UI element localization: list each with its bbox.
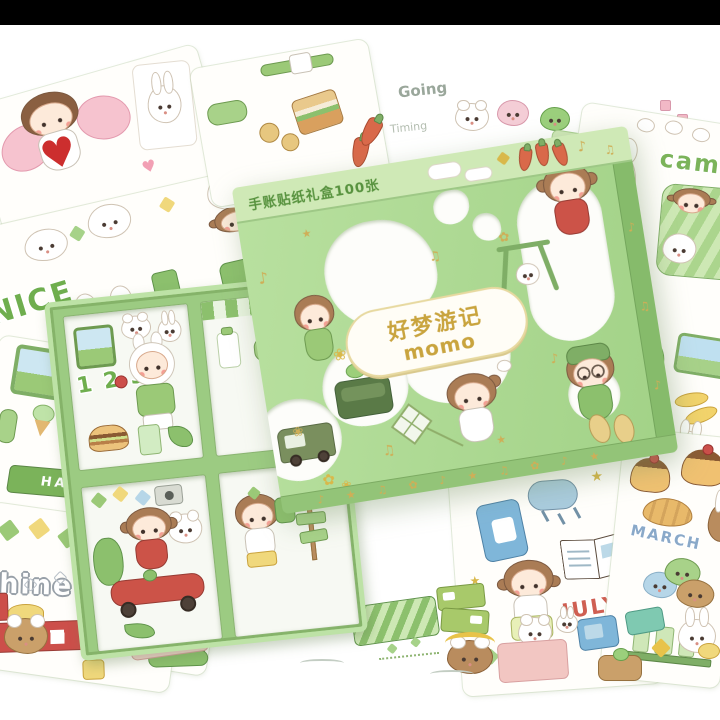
letterbox-top: [0, 0, 720, 25]
chick-icon: [496, 359, 513, 373]
green-outfit: [303, 326, 336, 362]
camera-lens: [164, 491, 174, 501]
mini-face-icon: [691, 127, 711, 144]
bear-head-sticker: [455, 103, 489, 131]
carrot-icon: [551, 141, 572, 168]
diamond-flower-icon: [28, 517, 50, 539]
camp-label: camp: [658, 144, 720, 182]
couch-cushion: [340, 382, 386, 403]
wheel-icon: [179, 595, 197, 613]
bunny-on-swing: [514, 261, 541, 286]
music-note-icon: ♪: [549, 351, 560, 367]
music-note-icon: ♫: [638, 298, 651, 314]
cloud-icon: [464, 165, 494, 182]
gold-star-icon: [496, 151, 510, 165]
cloud-bunny-icon: [21, 224, 71, 265]
diamond-sparkle-icon: [159, 196, 176, 213]
bunny-icon: [146, 84, 184, 125]
white-dress: [457, 406, 496, 445]
mini-face-icon: [636, 117, 656, 134]
game-console-sticker: [576, 614, 620, 651]
wheel-icon: [120, 601, 138, 619]
music-note-icon: ♫: [428, 249, 442, 266]
leaf-dot: [410, 637, 421, 648]
music-note-icon: ♫: [603, 142, 616, 158]
face: [662, 233, 696, 264]
yellow-shorts: [246, 550, 277, 568]
raindrop-icon: [573, 507, 581, 519]
bottle-cap: [221, 326, 234, 335]
diecut-window-flower: [431, 188, 472, 227]
tv-picture-sticker: [673, 332, 720, 380]
pig-head-sticker: [497, 100, 529, 126]
green-card-sticker: [440, 607, 490, 634]
duck-icon: [698, 643, 720, 659]
face: [5, 619, 47, 653]
leaf-icon: [124, 621, 156, 640]
box-lid: 手账贴纸礼盒100张 ♪ ♫: [232, 126, 679, 515]
card-chip: [470, 615, 483, 624]
couch-sticker-through-window: [333, 374, 394, 420]
wheel-icon: [289, 454, 303, 468]
burger-icon: [87, 423, 129, 453]
bunny-face: [147, 85, 183, 124]
hat-bear-sticker: [0, 610, 52, 658]
milk-bottle-icon: [216, 331, 242, 369]
charm-bunny-icon: [556, 613, 578, 633]
watch-face-icon: [288, 51, 313, 75]
jeep-sticker-through-window: [276, 422, 337, 464]
red-outfit: [134, 537, 169, 571]
face: [676, 579, 715, 609]
music-note-icon: ♪: [627, 220, 637, 235]
gold-star-icon: ★: [301, 226, 313, 240]
pink-envelope-icon: [497, 639, 570, 684]
pudding-icon: [680, 448, 720, 488]
diamond-flower-icon: [0, 519, 20, 541]
flower-dot-icon: [90, 492, 107, 509]
sandwich-icon: [290, 88, 345, 136]
bear-head-icon: [4, 618, 48, 654]
leaf-dot: [387, 643, 398, 654]
squiggle-line-icon: [430, 670, 474, 678]
bunny-card-sticker: [131, 59, 198, 151]
handwriting-timing: Timing: [389, 119, 427, 136]
face: [515, 262, 540, 285]
face: [456, 104, 488, 130]
music-note-icon: ♫: [381, 442, 396, 460]
mini-face-icon: [664, 119, 684, 136]
leaf-icon: [168, 424, 194, 448]
frog-head-sticker: [540, 107, 570, 131]
matcha-roll-icon: [206, 98, 249, 127]
book-page-left: [559, 539, 599, 579]
sign-board: [295, 511, 326, 526]
tray-compartment-scooter-pack: [80, 474, 223, 652]
sticker-box-photo: ♥ ♥ NICE: [0, 25, 720, 670]
raindrop-icon: [557, 513, 565, 525]
crown-star-icon: ★: [590, 468, 604, 485]
pouch-sticker: [598, 655, 642, 681]
icecream-cone-icon: [32, 419, 50, 437]
frog-charm-icon: [613, 648, 629, 661]
face: [22, 226, 70, 265]
notebook-cover-art: [491, 516, 518, 544]
cookie-icon: [258, 121, 281, 144]
handwriting-going: Going: [397, 78, 448, 101]
camp-girl: [668, 187, 714, 236]
kite-girl: [442, 369, 508, 460]
gold-blossom-icon: ❀: [331, 344, 348, 365]
camera-icon: [154, 484, 184, 507]
window-sticker: [73, 324, 117, 370]
gold-blossom-icon: ❀: [292, 424, 305, 441]
face: [85, 201, 133, 242]
sleeping-bag-girl-sticker: [655, 183, 720, 282]
raindrop-icon: [541, 510, 549, 522]
red-outfit: [553, 197, 591, 236]
face: [498, 101, 528, 125]
cookie-icon: [280, 132, 301, 153]
notebook-sticker: [475, 498, 530, 564]
drink-cup-icon: [137, 424, 162, 456]
diamond-outline-icon: [23, 578, 37, 592]
scooter-sticker: [109, 572, 206, 618]
card-chip: [442, 592, 455, 601]
pudding-icon: [629, 456, 672, 494]
gold-flower-icon: ✿: [321, 470, 336, 490]
popsicle-icon: [0, 408, 19, 444]
face: [541, 108, 569, 130]
cloud-bunny-icon: [84, 200, 135, 243]
music-note-icon: ♪: [257, 268, 270, 288]
music-note-icon: ♪: [576, 138, 587, 155]
bear-pink-envelope-sticker: [498, 625, 570, 683]
diamond-sparkle-icon: [69, 225, 86, 242]
pink-square-sticker: [660, 100, 671, 111]
squiggle-line-icon: [300, 659, 344, 667]
flower-dot-icon: [134, 489, 151, 506]
tray-compartment-pack-123: 1 2 3: [62, 303, 204, 471]
diamond-outline-icon: [53, 571, 67, 585]
music-note-icon: ♪: [653, 378, 663, 393]
yellow-note-icon: [82, 659, 105, 680]
flower-dot-icon: [112, 486, 129, 503]
heart-icon: ♥: [140, 155, 159, 177]
headphones-icon: [445, 632, 495, 654]
cloud-icon: [426, 160, 462, 181]
carrot-icon: [534, 141, 551, 167]
rain-cloud-icon: [527, 478, 579, 511]
wheel-icon: [317, 449, 331, 463]
console-screen: [584, 623, 604, 639]
brown-bunny-icon: [706, 503, 720, 544]
sign-board: [299, 528, 329, 545]
vine-squiggle-icon: [377, 632, 439, 660]
carrot-icon: [517, 146, 532, 171]
headphone-bear-sticker: [443, 632, 497, 674]
bunny-duck-sticker: [676, 605, 720, 663]
cat-icon: [661, 232, 697, 265]
face: [557, 614, 577, 632]
